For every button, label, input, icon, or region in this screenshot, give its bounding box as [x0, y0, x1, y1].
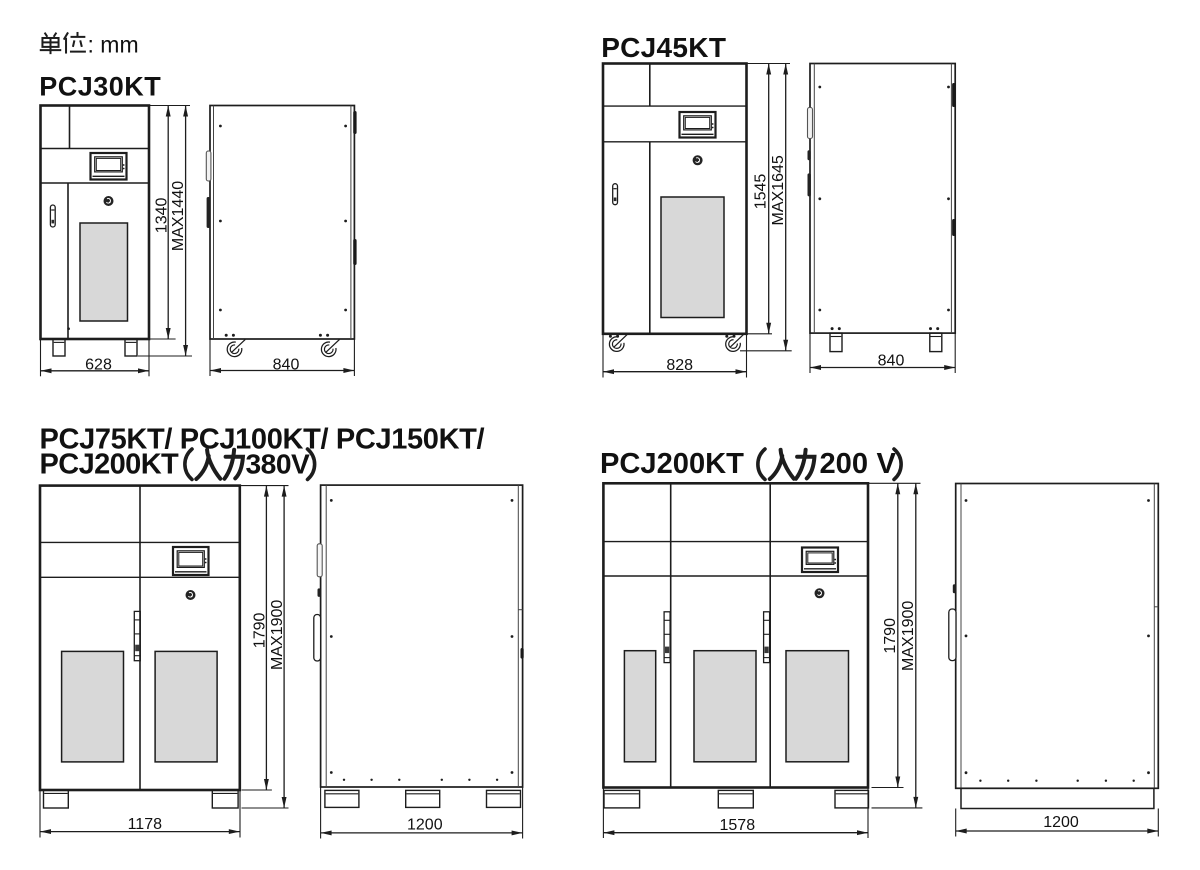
svg-text:1340: 1340	[153, 198, 170, 234]
svg-text:1178: 1178	[128, 816, 163, 833]
svg-text:: mm: : mm	[88, 32, 139, 58]
svg-text:PCJ200KT: PCJ200KT	[40, 449, 180, 481]
svg-text:MAX1440: MAX1440	[170, 181, 187, 251]
svg-text:MAX1645: MAX1645	[770, 155, 787, 225]
svg-text:MAX1900: MAX1900	[269, 600, 286, 670]
svg-text:628: 628	[85, 356, 112, 373]
svg-text:MAX1900: MAX1900	[900, 601, 917, 671]
svg-text:840: 840	[273, 356, 300, 373]
svg-text:PCJ200KT: PCJ200KT	[600, 448, 744, 480]
svg-text:1200: 1200	[1043, 814, 1079, 831]
svg-text:PCJ45KT: PCJ45KT	[601, 32, 726, 63]
svg-text:828: 828	[666, 357, 693, 374]
svg-text:1578: 1578	[720, 817, 756, 834]
svg-text:V: V	[877, 448, 897, 480]
svg-text:PCJ30KT: PCJ30KT	[39, 71, 161, 101]
svg-text:1790: 1790	[882, 618, 899, 654]
svg-text:1200: 1200	[407, 816, 443, 833]
svg-text:1545: 1545	[752, 174, 769, 210]
svg-text:840: 840	[878, 353, 905, 370]
svg-text:200: 200	[820, 448, 869, 480]
svg-text:1790: 1790	[252, 613, 269, 649]
svg-text:380V: 380V	[246, 448, 311, 480]
